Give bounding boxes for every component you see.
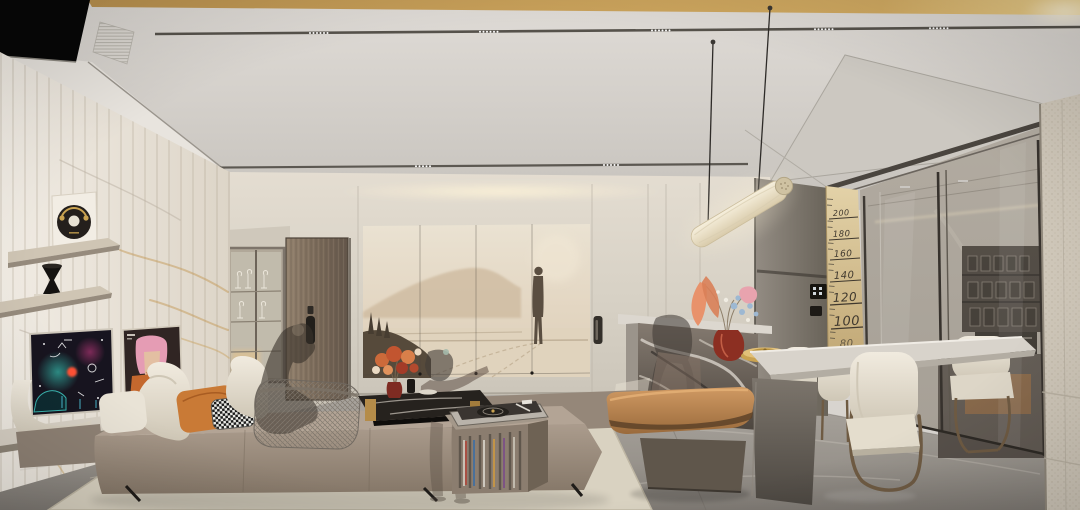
interior-render: 200 180 160 140 120 100 80 bbox=[0, 0, 1080, 510]
vignette bbox=[0, 0, 1080, 510]
scene-canvas: 200 180 160 140 120 100 80 bbox=[0, 0, 1080, 510]
